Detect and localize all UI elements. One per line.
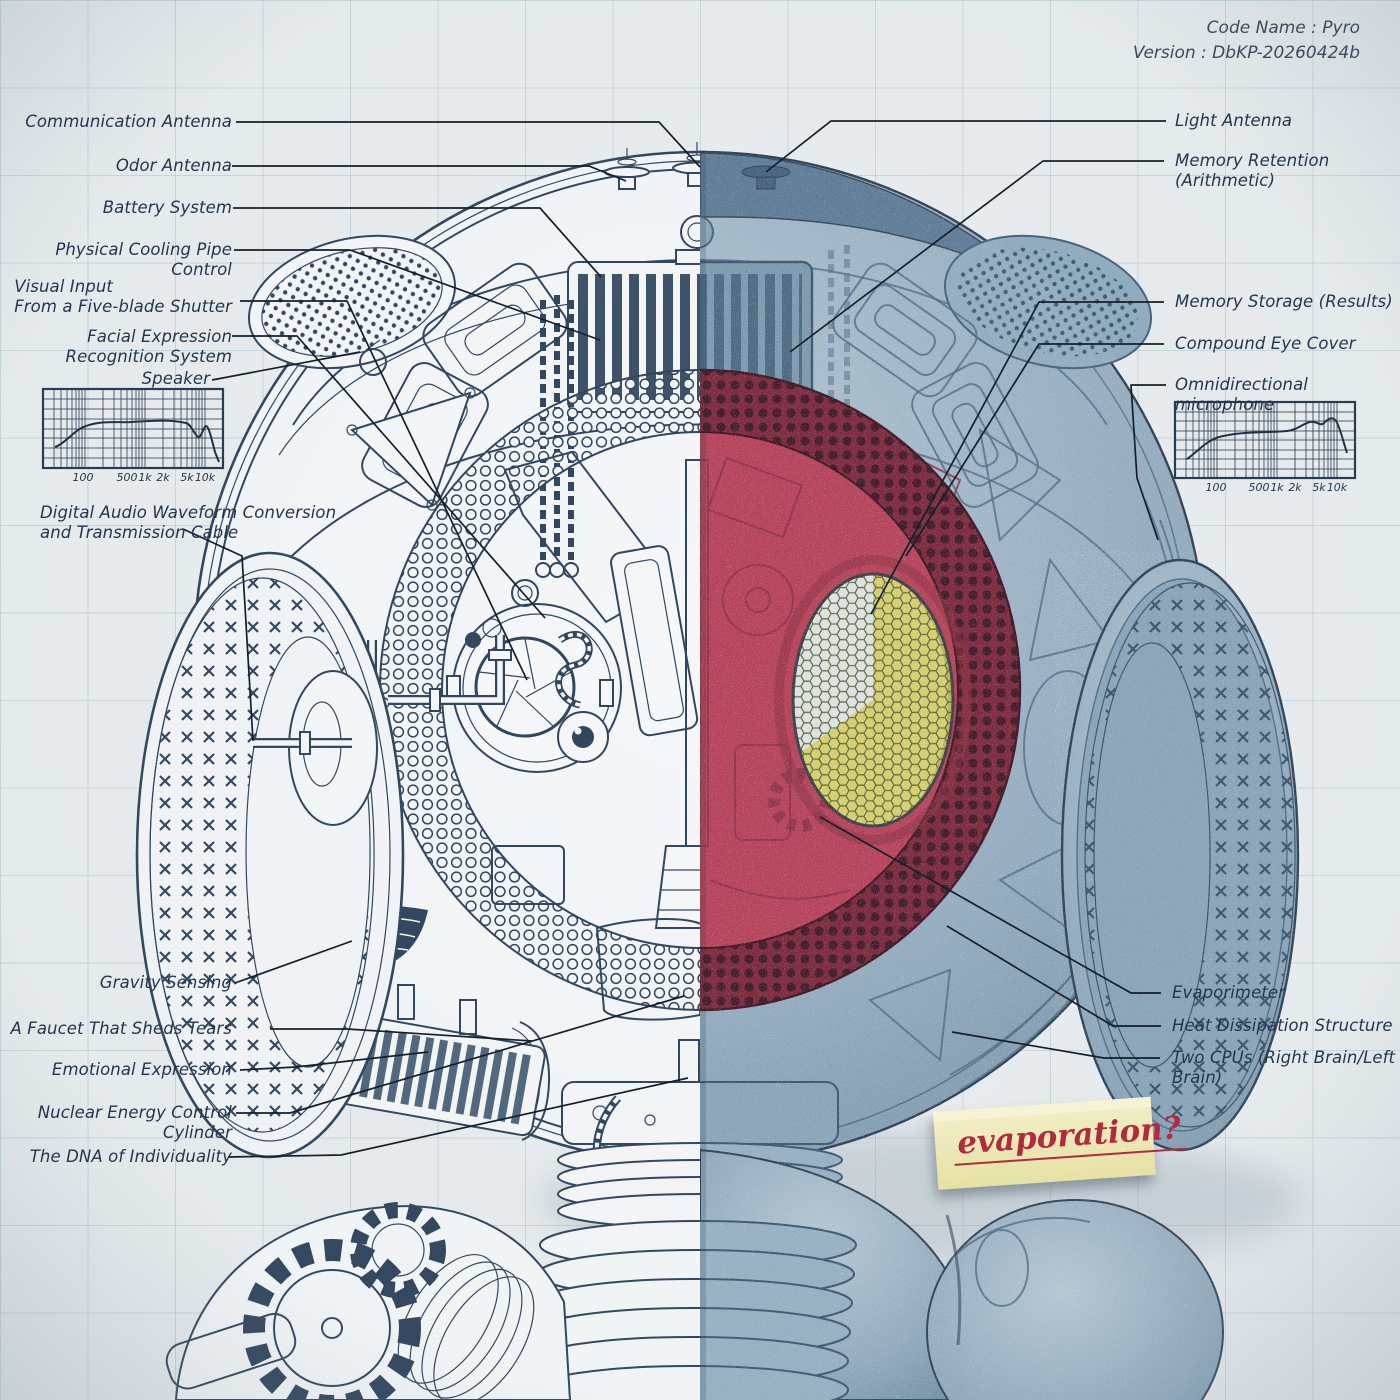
vignette: [0, 0, 1400, 1400]
blueprint-canvas: Code Name : Pyro Version : DbKP-20260424…: [0, 0, 1400, 1400]
sticky-note: [933, 1097, 1156, 1190]
robot-head-illustration: [0, 0, 1400, 1400]
